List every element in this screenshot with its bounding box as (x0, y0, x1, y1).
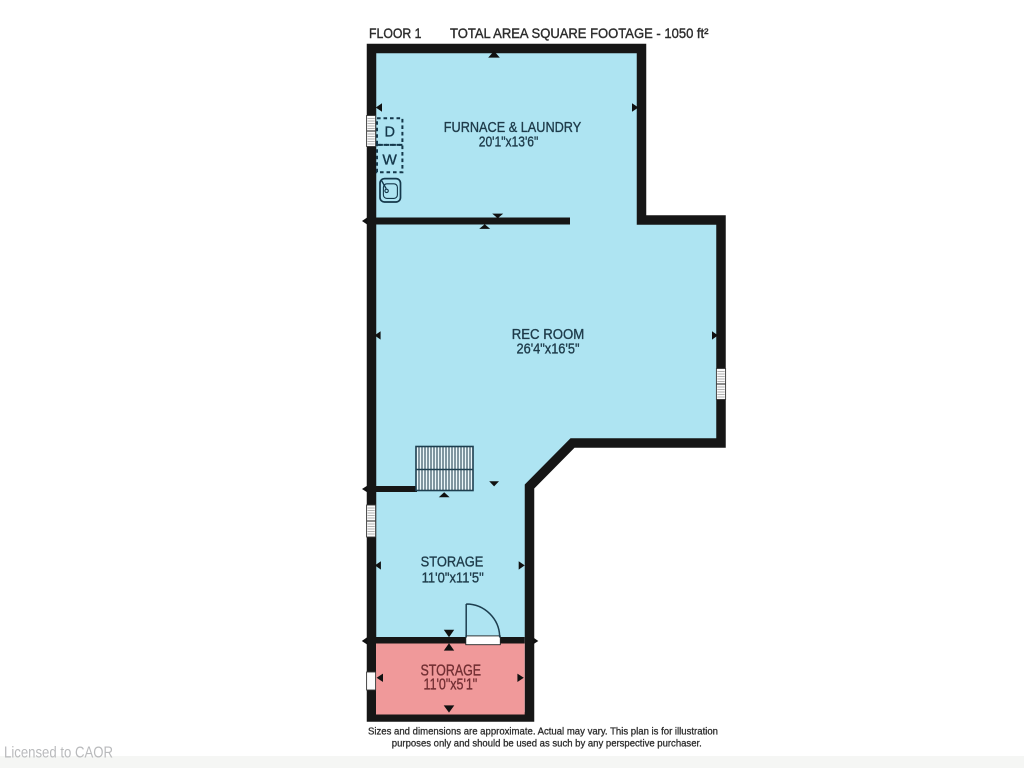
svg-text:FLOOR 1: FLOOR 1 (369, 25, 422, 41)
svg-text:11'0"x11'5": 11'0"x11'5" (422, 570, 484, 587)
svg-text:D: D (384, 125, 394, 141)
svg-text:Sizes and dimensions are appro: Sizes and dimensions are approximate. Ac… (368, 725, 718, 737)
svg-text:purposes only and should be us: purposes only and should be used as such… (392, 738, 702, 750)
svg-text:26'4"x16'5": 26'4"x16'5" (517, 341, 580, 358)
svg-text:TOTAL AREA SQUARE FOOTAGE - 10: TOTAL AREA SQUARE FOOTAGE - 1050 ft² (450, 25, 709, 41)
svg-text:W: W (382, 153, 397, 169)
svg-text:20'1"x13'6": 20'1"x13'6" (479, 133, 539, 150)
svg-text:11'0"x5'1": 11'0"x5'1" (424, 676, 478, 693)
svg-text:Licensed to CAOR: Licensed to CAOR (4, 745, 113, 762)
svg-text:STORAGE: STORAGE (421, 554, 484, 571)
